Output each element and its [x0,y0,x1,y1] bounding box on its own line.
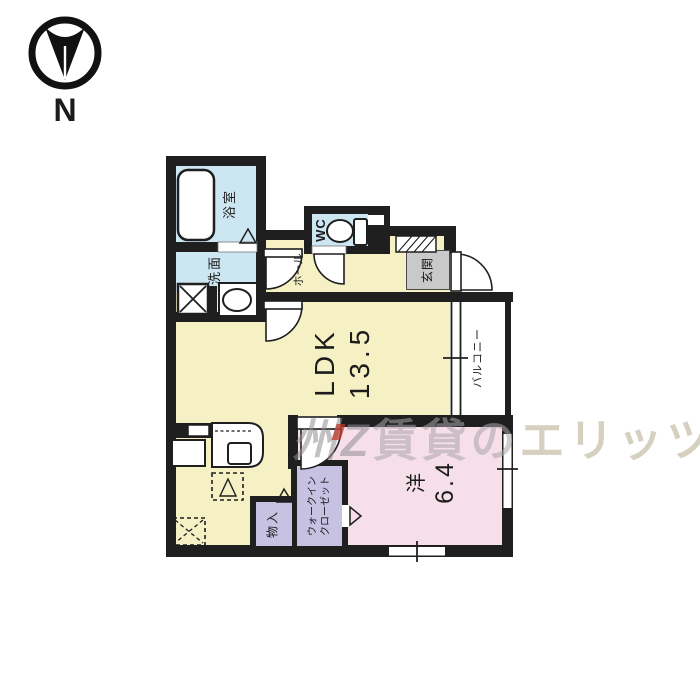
ldk-door-icon [264,301,302,341]
wic-label-line2: クローゼット [320,476,333,536]
toilet-icon [327,219,367,245]
wic-label-line1: ウォークイン [308,476,321,536]
kitchen-sink-icon [228,443,251,464]
wc-label: WC [313,218,329,242]
shoe-cabinet-icon [396,236,436,252]
balcony-label: バルコニー [472,328,486,388]
washer-pan-icon [178,284,208,314]
watermark-logo: 州Z [292,415,373,466]
floor-plan: N 浴室 洗面 WC ホール 玄関 バルコニー LDK 13.5 洋 6.4 物… [0,0,700,700]
bath-label: 浴室 [222,189,238,219]
entrance-label: 玄関 [421,257,436,283]
south-window-icon [389,541,445,562]
entrance-door-icon [451,252,492,291]
bathtub-icon [178,170,214,240]
ldk-name: LDK [307,325,342,400]
balcony-window-icon [443,302,468,415]
storage-door-icon [277,489,292,502]
compass-north-label: N [53,91,76,129]
washroom-label: 洗面 [207,255,223,285]
watermark-tan-text: エリッツ [520,415,700,466]
wc-door-icon [312,246,346,284]
watermark-gray-text: 賃貸の [373,415,520,466]
hall-label: ホール [293,254,307,287]
wic-label: ウォークイン クローゼット [308,476,333,536]
kitchen-window-icon [188,425,209,436]
ldk-size: 13.5 [342,325,377,400]
basin-icon [219,283,257,316]
ldk-label: LDK 13.5 [307,325,377,400]
storage-label: 物入 [266,510,281,538]
wic-door-icon [342,505,361,527]
bath-door-icon [240,229,256,243]
kitchen-counter-icon [172,423,263,467]
compass-icon [32,20,98,86]
appliance-space-icon [173,518,205,545]
watermark: 州Z賃貸のエリッツ [292,404,700,469]
fridge-space-icon [212,473,243,500]
